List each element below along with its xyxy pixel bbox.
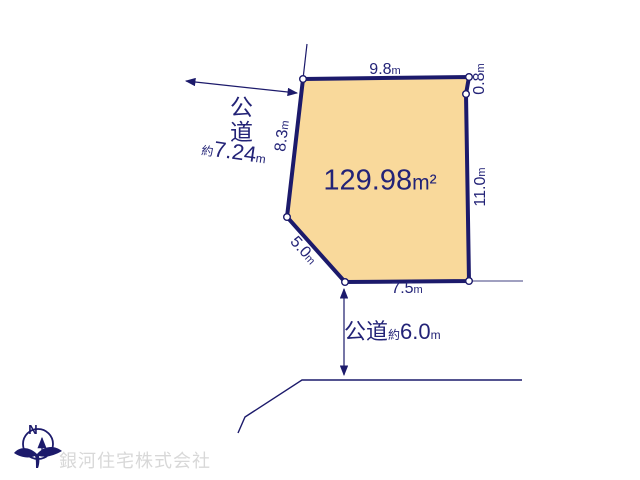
plan-drawing: N <box>0 0 640 480</box>
parcel-area-label: 129.98m² <box>323 167 436 196</box>
edge-length-bottom-unit: m <box>414 284 423 296</box>
road-south-approx-prefix: 約 <box>388 328 400 342</box>
site-plan-diagram: N 9.8m 0.8m 11.0m 7.5m 5.0m 8.3m 129.98m… <box>0 0 640 480</box>
edge-length-top: 9.8m <box>369 62 400 78</box>
edge-length-right-value: 11.0 <box>472 177 489 207</box>
compass-north-icon: N <box>14 422 62 468</box>
edge-length-left-value: 8.3 <box>272 128 292 152</box>
vertex-marker <box>463 91 470 98</box>
edge-length-top-right: 0.8m <box>472 63 488 94</box>
edge-length-top-right-unit: m <box>475 63 487 72</box>
road-west-width-unit: m <box>255 151 267 166</box>
edge-length-right: 11.0m <box>473 167 489 206</box>
parcel-area-value: 129.98 <box>323 165 412 197</box>
edge-length-top-value: 9.8 <box>369 61 391 78</box>
vertex-marker <box>284 214 291 221</box>
road-south-width-unit: m <box>431 328 441 342</box>
company-watermark: 銀河住宅株式会社 <box>59 447 211 473</box>
edge-length-bottom: 7.5m <box>391 281 422 297</box>
vertex-marker <box>342 279 349 286</box>
compass-north-label: N <box>28 422 37 437</box>
road-width-arrow-west <box>186 81 297 93</box>
vertex-marker <box>300 76 307 83</box>
road-south-width: 公道約6.0m <box>344 321 441 343</box>
edge-length-left-unit: m <box>279 120 292 131</box>
road-south-label: 公道 <box>344 319 388 344</box>
edge-length-bottom-value: 7.5 <box>391 280 413 297</box>
boundary-extension-line-top <box>303 44 307 79</box>
vertex-marker <box>466 278 473 285</box>
parcel-area-unit: m² <box>412 172 437 195</box>
compass-bird-icon <box>14 447 62 468</box>
edge-length-top-unit: m <box>392 65 401 77</box>
road-edge-line-south <box>238 380 522 433</box>
road-south-width-value: 6.0 <box>400 319 431 344</box>
edge-length-top-right-value: 0.8 <box>471 72 488 94</box>
edge-length-right-unit: m <box>476 167 488 176</box>
